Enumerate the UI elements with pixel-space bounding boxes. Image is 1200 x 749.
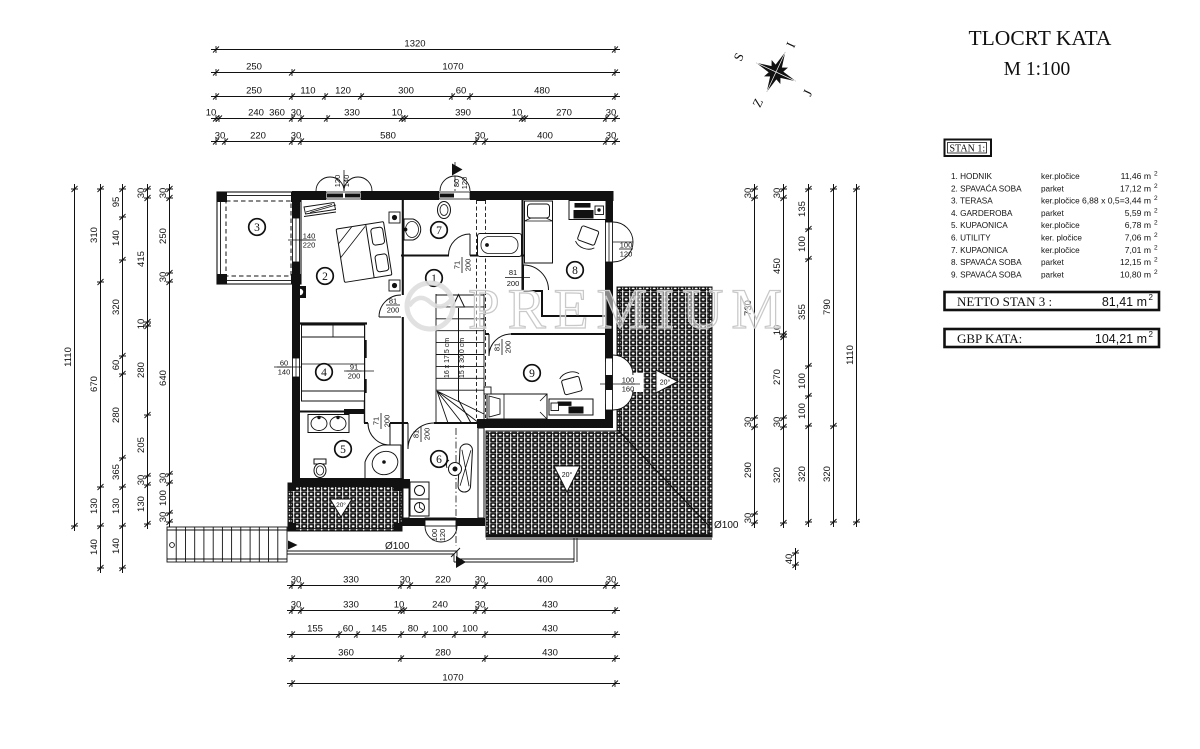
svg-text:2: 2 [1154, 269, 1158, 276]
svg-text:30: 30 [606, 575, 617, 586]
svg-text:PREMIUM: PREMIUM [468, 278, 790, 341]
svg-text:2: 2 [1154, 207, 1158, 214]
svg-text:100: 100 [462, 624, 478, 635]
svg-text:2: 2 [1154, 244, 1158, 251]
svg-text:30: 30 [158, 188, 169, 199]
svg-text:60: 60 [111, 360, 122, 371]
svg-text:10: 10 [512, 108, 523, 119]
svg-text:580: 580 [380, 131, 396, 142]
svg-text:250: 250 [246, 86, 262, 97]
svg-text:30: 30 [158, 272, 169, 283]
svg-text:3: 3 [254, 222, 260, 234]
svg-text:7,06 m: 7,06 m [1125, 233, 1151, 243]
svg-text:120: 120 [460, 177, 469, 190]
svg-text:30: 30 [158, 473, 169, 484]
svg-text:2: 2 [1154, 257, 1158, 264]
svg-text:280: 280 [435, 648, 451, 659]
svg-text:30: 30 [136, 188, 147, 199]
svg-text:20°: 20° [660, 379, 671, 387]
svg-text:330: 330 [343, 575, 359, 586]
svg-text:NETTO STAN 3 :: NETTO STAN 3 : [957, 294, 1052, 309]
svg-text:6,88 x 0,5=3,44 m: 6,88 x 0,5=3,44 m [1082, 196, 1151, 206]
svg-text:1070: 1070 [442, 673, 463, 684]
svg-text:120: 120 [620, 250, 633, 259]
svg-text:91: 91 [350, 363, 358, 372]
svg-text:450: 450 [772, 258, 783, 274]
svg-text:parket: parket [1041, 209, 1064, 218]
svg-text:360: 360 [338, 648, 354, 659]
svg-text:110: 110 [300, 86, 315, 97]
svg-text:320: 320 [772, 467, 783, 483]
svg-text:2: 2 [322, 271, 328, 283]
svg-text:ker. pločice: ker. pločice [1041, 234, 1082, 243]
svg-text:7. KUPAONICA: 7. KUPAONICA [951, 246, 1008, 255]
svg-text:81: 81 [509, 268, 517, 277]
svg-text:30: 30 [291, 131, 302, 142]
svg-text:15 x 30,0 cm: 15 x 30,0 cm [459, 338, 466, 378]
svg-text:30: 30 [475, 131, 486, 142]
svg-text:parket: parket [1041, 270, 1064, 279]
svg-text:ker.pločice: ker.pločice [1041, 221, 1080, 230]
svg-text:140: 140 [89, 539, 100, 555]
svg-text:30: 30 [136, 475, 147, 486]
svg-text:81: 81 [389, 297, 397, 306]
svg-text:2: 2 [1149, 330, 1154, 339]
svg-text:1070: 1070 [442, 62, 463, 73]
svg-text:270: 270 [556, 108, 572, 119]
svg-text:10: 10 [206, 108, 217, 119]
svg-text:5,59 m: 5,59 m [1125, 208, 1151, 218]
svg-text:16 x 17,5 cm: 16 x 17,5 cm [444, 338, 451, 378]
svg-text:10: 10 [136, 319, 147, 330]
svg-text:10: 10 [392, 108, 403, 119]
svg-text:140: 140 [278, 368, 291, 377]
svg-text:640: 640 [158, 370, 169, 386]
svg-text:30: 30 [743, 513, 754, 524]
svg-text:390: 390 [455, 108, 471, 119]
svg-text:30: 30 [291, 108, 302, 119]
svg-text:2: 2 [1154, 183, 1158, 190]
svg-text:100: 100 [432, 624, 448, 635]
svg-text:330: 330 [343, 600, 359, 611]
svg-text:17,12 m: 17,12 m [1120, 183, 1151, 193]
svg-text:310: 310 [89, 227, 100, 243]
svg-text:155: 155 [307, 624, 323, 635]
svg-text:TLOCRT KATA: TLOCRT KATA [969, 26, 1112, 50]
svg-text:Ø100: Ø100 [385, 541, 410, 552]
svg-text:320: 320 [822, 466, 833, 482]
svg-text:9: 9 [529, 368, 535, 380]
svg-text:2: 2 [1154, 220, 1158, 227]
svg-text:2: 2 [1149, 293, 1154, 302]
svg-text:200: 200 [383, 415, 392, 428]
svg-text:320: 320 [797, 466, 808, 482]
svg-text:250: 250 [158, 228, 169, 244]
svg-text:30: 30 [772, 188, 783, 199]
svg-text:670: 670 [89, 376, 100, 392]
svg-text:95: 95 [111, 197, 122, 208]
svg-text:430: 430 [542, 624, 558, 635]
svg-text:12,15 m: 12,15 m [1120, 257, 1151, 267]
svg-text:parket: parket [1041, 184, 1064, 193]
svg-text:365: 365 [111, 464, 122, 480]
svg-text:30: 30 [400, 575, 411, 586]
svg-text:ker.pločice: ker.pločice [1041, 172, 1080, 181]
svg-text:100: 100 [620, 241, 633, 250]
svg-text:200: 200 [464, 259, 473, 272]
svg-text:130: 130 [89, 498, 100, 514]
svg-text:8: 8 [572, 265, 578, 277]
svg-text:120: 120 [335, 86, 351, 97]
svg-text:290: 290 [743, 462, 754, 478]
svg-text:100: 100 [158, 490, 169, 506]
svg-text:81: 81 [412, 430, 421, 438]
svg-text:81,41 m: 81,41 m [1102, 295, 1147, 309]
svg-text:1110: 1110 [63, 347, 74, 367]
svg-text:135: 135 [797, 201, 808, 217]
svg-text:2: 2 [1154, 195, 1158, 202]
svg-text:1320: 1320 [404, 39, 425, 50]
svg-text:71: 71 [453, 261, 462, 269]
svg-text:130: 130 [111, 498, 122, 514]
svg-text:20°: 20° [562, 471, 573, 479]
svg-text:160: 160 [622, 385, 635, 394]
svg-text:4. GARDEROBA: 4. GARDEROBA [951, 209, 1013, 218]
svg-text:270: 270 [772, 369, 783, 385]
svg-text:Ø100: Ø100 [714, 520, 739, 531]
svg-text:200: 200 [348, 372, 361, 381]
svg-text:30: 30 [215, 131, 226, 142]
svg-text:104,21 m: 104,21 m [1095, 332, 1147, 346]
svg-text:400: 400 [537, 131, 553, 142]
svg-text:330: 330 [344, 108, 360, 119]
svg-text:4: 4 [321, 367, 327, 379]
svg-text:280: 280 [136, 362, 147, 378]
svg-text:30: 30 [291, 600, 302, 611]
svg-text:240: 240 [432, 600, 448, 611]
svg-text:8. SPAVAĆA SOBA: 8. SPAVAĆA SOBA [951, 257, 1022, 267]
svg-text:2. SPAVAĆA SOBA: 2. SPAVAĆA SOBA [951, 183, 1022, 193]
svg-text:30: 30 [475, 600, 486, 611]
svg-text:240: 240 [248, 108, 264, 119]
svg-text:30: 30 [743, 188, 754, 199]
svg-text:GBP KATA:: GBP KATA: [957, 331, 1022, 346]
svg-text:ker.pločice: ker.pločice [1041, 246, 1080, 255]
svg-text:60: 60 [343, 624, 354, 635]
svg-text:220: 220 [303, 241, 316, 250]
svg-text:250: 250 [246, 62, 262, 73]
svg-text:790: 790 [822, 299, 833, 315]
svg-text:120: 120 [333, 175, 342, 188]
svg-text:360: 360 [269, 108, 285, 119]
svg-text:10: 10 [394, 600, 405, 611]
svg-text:200: 200 [387, 306, 400, 315]
svg-text:6,78 m: 6,78 m [1125, 220, 1151, 230]
svg-text:STAN 1:: STAN 1: [950, 144, 986, 155]
svg-text:7,01 m: 7,01 m [1125, 245, 1151, 255]
svg-text:415: 415 [136, 251, 147, 267]
svg-text:60: 60 [456, 86, 467, 97]
svg-text:60: 60 [280, 359, 288, 368]
svg-text:6. UTILITY: 6. UTILITY [951, 234, 991, 243]
svg-text:3. TERASA: 3. TERASA [951, 197, 993, 206]
svg-text:7: 7 [436, 225, 442, 237]
svg-text:2: 2 [1154, 171, 1158, 178]
svg-text:220: 220 [250, 131, 266, 142]
svg-text:200: 200 [504, 341, 513, 354]
svg-text:71: 71 [372, 417, 381, 425]
svg-text:430: 430 [542, 648, 558, 659]
svg-text:480: 480 [534, 86, 550, 97]
svg-text:200: 200 [423, 428, 432, 441]
svg-text:140: 140 [111, 538, 122, 554]
svg-text:205: 205 [136, 437, 147, 453]
svg-text:130: 130 [136, 496, 147, 512]
svg-text:140: 140 [303, 232, 316, 241]
svg-text:11,46 m: 11,46 m [1121, 171, 1151, 181]
svg-text:30: 30 [158, 512, 169, 523]
svg-text:1. HODNIK: 1. HODNIK [951, 172, 992, 181]
svg-text:2: 2 [1154, 232, 1158, 239]
svg-text:100: 100 [797, 236, 808, 252]
svg-text:80: 80 [408, 624, 419, 635]
svg-text:100: 100 [622, 376, 635, 385]
svg-text:5: 5 [340, 444, 346, 456]
svg-text:400: 400 [537, 575, 553, 586]
svg-text:10,80 m: 10,80 m [1120, 269, 1151, 279]
svg-text:ker.pločice: ker.pločice [1041, 197, 1080, 206]
svg-text:30: 30 [606, 108, 617, 119]
svg-text:9. SPAVAĆA SOBA: 9. SPAVAĆA SOBA [951, 269, 1022, 279]
svg-text:40: 40 [784, 554, 795, 565]
svg-text:30: 30 [743, 417, 754, 428]
svg-text:30: 30 [291, 575, 302, 586]
svg-text:140: 140 [342, 175, 351, 188]
svg-text:30: 30 [475, 575, 486, 586]
svg-text:320: 320 [111, 299, 122, 315]
svg-text:430: 430 [542, 600, 558, 611]
svg-text:100: 100 [797, 373, 808, 389]
svg-text:81: 81 [493, 343, 502, 351]
svg-text:parket: parket [1041, 258, 1064, 267]
svg-text:300: 300 [398, 86, 414, 97]
svg-text:1110: 1110 [845, 345, 856, 365]
svg-text:280: 280 [111, 407, 122, 423]
svg-text:20°: 20° [336, 501, 346, 509]
svg-text:140: 140 [111, 230, 122, 246]
svg-text:220: 220 [435, 575, 451, 586]
svg-text:145: 145 [371, 624, 387, 635]
svg-text:5. KUPAONICA: 5. KUPAONICA [951, 221, 1008, 230]
svg-text:30: 30 [606, 131, 617, 142]
svg-text:120: 120 [438, 529, 447, 542]
svg-text:100: 100 [797, 403, 808, 419]
svg-text:6: 6 [436, 454, 442, 466]
svg-text:30: 30 [772, 417, 783, 428]
svg-text:355: 355 [797, 304, 808, 320]
svg-text:M 1:100: M 1:100 [1004, 59, 1071, 80]
